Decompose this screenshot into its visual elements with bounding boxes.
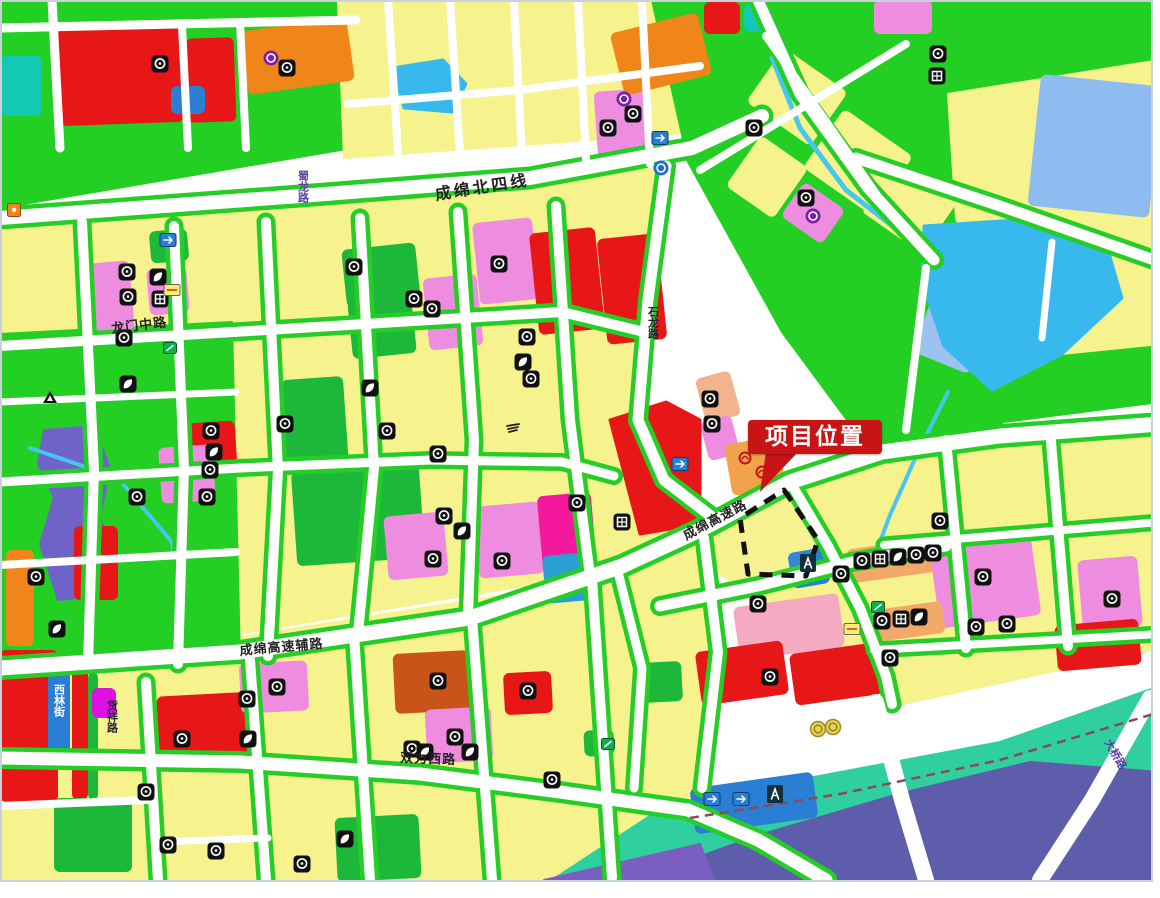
poi-r-icon [544,772,561,789]
poi-ycr-icon [826,720,841,735]
poi-r-icon [569,495,586,512]
right-margin [1153,0,1160,898]
poi-r-icon [925,545,942,562]
poi-l-icon [362,380,379,397]
poi-r-icon [520,683,537,700]
poi-r-icon [203,423,220,440]
poi-r-icon [494,553,511,570]
poi-bc-icon [672,458,688,471]
poi-r-icon [762,669,779,686]
poi-b-icon [893,611,910,628]
poi-r-icon [491,256,508,273]
poi-r-icon [28,569,45,586]
poi-l-icon [206,444,223,461]
poi-r-icon [160,837,177,854]
poi-r-icon [968,619,985,636]
poi-r-icon [202,462,219,479]
land-parcel [54,798,132,872]
poi-r-icon [346,259,363,276]
poi-r-icon [975,569,992,586]
poi-r-icon [424,301,441,318]
poi-r-icon [119,264,136,281]
poi-dk-icon [767,785,783,803]
poi-r-icon [882,650,899,667]
poi-l-icon [120,376,137,393]
road-label: 双力西路 [400,750,457,768]
poi-l-icon [890,549,907,566]
poi-r-icon [1104,591,1121,608]
poi-bc-icon [160,234,176,247]
poi-bc-icon [704,793,720,806]
land-parcel [704,2,740,34]
poi-l-icon [515,354,532,371]
poi-r-icon [138,784,155,801]
zoning-map-canvas: 成绵北四线成绵高速辅路成绵高速路龙门中路双力西路石龙路西林街货祥路蜀龙路大桥路 [0,0,1160,898]
poi-r-icon [425,551,442,568]
poi-l-icon [240,731,257,748]
bottom-margin [0,882,1160,898]
poi-br-icon [654,161,669,176]
poi-l-icon [150,269,167,286]
poi-r-icon [702,391,719,408]
poi-r-icon [625,106,642,123]
poi-r-icon [120,289,137,306]
poi-r-icon [932,513,949,530]
poi-r-icon [854,553,871,570]
poi-r-icon [239,691,256,708]
road-label: 货祥路 [106,699,120,734]
poi-yc-icon [164,285,180,296]
poi-b-icon [929,68,946,85]
poi-b-icon [614,514,631,531]
poi-dk-icon [800,554,816,572]
poi-ycr-icon [811,722,826,737]
road-label: 西林街 [53,684,67,718]
poi-r-icon [999,616,1016,633]
project-location-callout: 项目位置 [748,420,882,454]
poi-r-icon [704,416,721,433]
poi-r-icon [199,489,216,506]
poi-pr-icon [806,209,821,224]
poi-r-icon [523,371,540,388]
poi-r-icon [798,190,815,207]
poi-r-icon [174,731,191,748]
zoning-map[interactable]: 成绵北四线成绵高速辅路成绵高速路龙门中路双力西路石龙路西林街货祥路蜀龙路大桥路 … [0,0,1160,898]
poi-pr-icon [617,92,632,107]
poi-gc-icon [602,739,615,750]
poi-r-icon [833,566,850,583]
poi-b-icon [872,551,889,568]
poi-r-icon [277,416,294,433]
poi-r-icon [379,423,396,440]
poi-r-icon [430,446,447,463]
land-parcel [72,660,88,800]
poi-l-icon [49,621,66,638]
poi-r-icon [447,729,464,746]
road-label: 蜀龙路 [297,170,311,204]
poi-r-icon [129,489,146,506]
poi-r-icon [269,679,286,696]
land-parcel [1027,74,1160,218]
poi-r-icon [519,329,536,346]
poi-r-icon [294,856,311,873]
poi-l-icon [462,744,479,761]
poi-pr-icon [264,51,279,66]
project-location-label: 项目位置 [765,426,865,449]
poi-gc-icon [872,602,885,613]
poi-yc-icon [844,624,860,635]
poi-r-icon [930,46,947,63]
poi-r-icon [430,673,447,690]
road-label: 石龙路 [647,306,661,340]
poi-bc-icon [733,793,749,806]
land-parcel [0,56,42,116]
poi-r-icon [874,613,891,630]
poi-r-icon [746,120,763,137]
land-parcel [874,0,932,34]
poi-r-icon [600,120,617,137]
poi-r-icon [406,291,423,308]
poi-r-icon [152,56,169,73]
poi-l-icon [454,523,471,540]
poi-r-icon [208,843,225,860]
poi-gc-icon [164,343,177,354]
poi-r-icon [279,60,296,77]
poi-r-icon [436,508,453,525]
poi-r-icon [908,547,925,564]
poi-l-icon [337,831,354,848]
land-parcel [54,26,183,126]
poi-r-icon [750,596,767,613]
poi-l-icon [911,609,928,626]
poi-bc-icon [652,132,668,145]
poi-oc-icon [8,204,21,217]
